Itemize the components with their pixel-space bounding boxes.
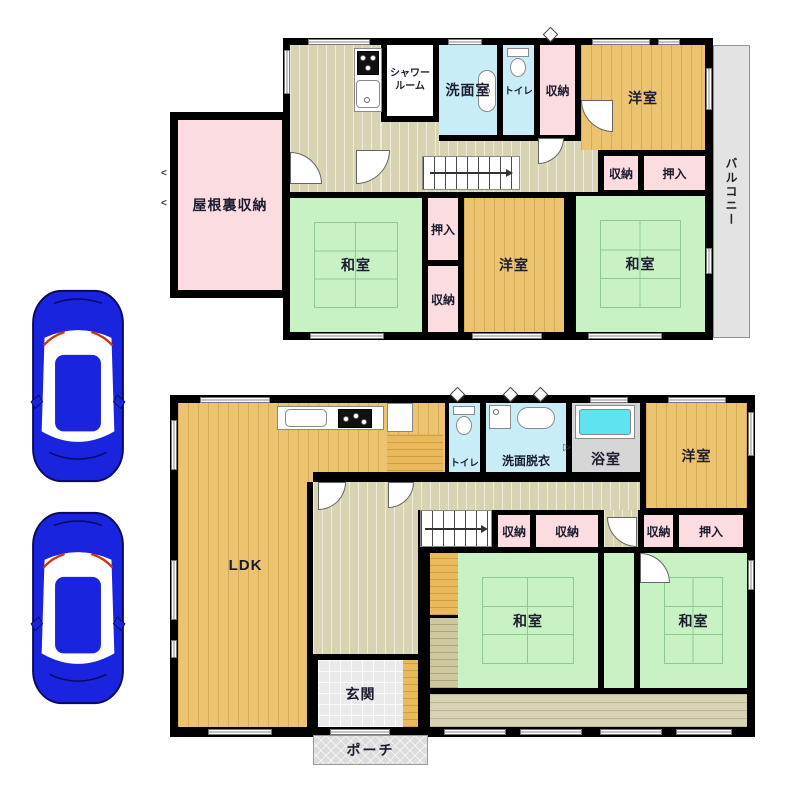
western-room-label: 洋室 (628, 88, 658, 108)
tokonoma-strip (430, 553, 458, 615)
room-washitsu-2f-left: 和室 (290, 198, 422, 332)
room-washitsu-2f-right: 和室 (576, 196, 705, 332)
room-closet-1f-b: 収納 (536, 515, 598, 547)
window (706, 68, 712, 110)
washing-machine-icon (489, 405, 511, 429)
attic-storage-label: 屋根裏収納 (193, 195, 268, 215)
shower-room-label: シャワールーム (388, 68, 432, 93)
floor1-hall-top (313, 482, 640, 510)
shoe-cabinet-strip (403, 660, 418, 727)
floor2-balcony: バルコニー (713, 45, 750, 338)
western-room-label: 洋室 (682, 446, 712, 466)
room-attic-storage: 屋根裏収納 (178, 120, 282, 290)
washitsu-label: 和室 (513, 611, 543, 631)
bath-door-arrow: ▷ (563, 442, 571, 453)
hatch-marker: < (161, 198, 167, 209)
washitsu-label: 和室 (341, 255, 371, 275)
toilet-icon (453, 406, 475, 415)
wall-segment (313, 472, 640, 482)
room-closet-1f-a: 収納 (498, 515, 530, 547)
room-entrance: 玄関 (318, 660, 403, 727)
window (308, 39, 370, 45)
room-closet-2f-mid: 収納 (428, 266, 458, 332)
closet-label: 収納 (555, 523, 579, 540)
bathtub-icon (579, 409, 631, 435)
board-floor-strip (430, 618, 458, 688)
washitsu-label: 和室 (679, 611, 709, 631)
oshiire-label: 押入 (431, 221, 455, 238)
passage-strip-green (604, 553, 634, 688)
window (284, 50, 290, 94)
wall-segment (307, 482, 313, 727)
window (592, 39, 650, 45)
room-oshiire-2f-right: 押入 (644, 156, 705, 190)
hatch-marker: < (161, 168, 167, 179)
washroom-dressing-label: 洗面脱衣 (502, 452, 550, 469)
stairs-arrow-head (481, 525, 488, 533)
window (590, 397, 628, 403)
bathroom-label: 浴室 (591, 449, 621, 469)
oshiire-label: 押入 (699, 523, 723, 540)
toilet-label: トイレ (450, 455, 479, 469)
room-oshiire-2f-mid: 押入 (428, 198, 458, 260)
ldk-label: LDK (229, 557, 263, 574)
toilet-label: トイレ (504, 83, 533, 97)
stove-icon (357, 51, 379, 75)
window (200, 397, 270, 403)
room-washitsu-1f-left: 和室 (458, 553, 598, 688)
room-western-1f: 洋室 (646, 403, 747, 508)
stairs-arrow-line (430, 172, 506, 174)
floor1-hall-vertical (313, 510, 418, 654)
stove-icon (338, 409, 372, 428)
window (171, 640, 177, 658)
window (171, 420, 177, 470)
kitchen-sink-icon (285, 409, 327, 427)
washitsu-label: 和室 (626, 254, 656, 274)
room-closet-2f-right: 収納 (604, 156, 638, 190)
window (171, 560, 177, 620)
room-shower: シャワールーム (387, 45, 433, 116)
porch: ポーチ (313, 735, 428, 765)
window (600, 729, 662, 735)
stairs-arrow-head (506, 169, 513, 177)
window (748, 412, 754, 456)
toilet-icon (510, 58, 526, 77)
closet-label: 収納 (609, 165, 633, 182)
room-western-2f-top: 洋室 (581, 45, 705, 150)
window (208, 729, 272, 735)
kitchen-sink-icon (356, 80, 380, 108)
stairs-arrow-line (425, 528, 481, 530)
window (444, 729, 506, 735)
window (520, 729, 582, 735)
wall-segment (640, 508, 747, 515)
room-washroom-2f: 洗面室 (439, 45, 497, 135)
floorplan-canvas: バルコニー 屋根裏収納 シャワールーム 洗面室 トイレ 収納 洋室 収納 押入 … (0, 0, 785, 800)
window (668, 397, 726, 403)
closet-label: 収納 (545, 82, 569, 99)
closet-label: 収納 (646, 523, 670, 540)
car-icon (30, 288, 126, 484)
room-oshiire-1f: 押入 (679, 515, 743, 547)
window (472, 333, 542, 339)
window (748, 560, 754, 590)
window (330, 729, 390, 735)
washroom-label: 洗面室 (446, 80, 491, 100)
toilet-icon (507, 48, 529, 57)
balcony-label: バルコニー (723, 157, 740, 227)
entrance-label: 玄関 (346, 684, 376, 704)
window (706, 248, 712, 274)
toilet-icon (456, 416, 472, 435)
car-icon (30, 510, 126, 706)
window (676, 729, 732, 735)
wash-basin-icon (517, 407, 555, 429)
room-western-2f-mid: 洋室 (464, 198, 564, 332)
western-room-label: 洋室 (499, 255, 529, 275)
engawa-corridor (430, 694, 747, 727)
room-closet-2f-top: 収納 (540, 45, 575, 135)
window (310, 333, 384, 339)
window (658, 39, 680, 45)
cupboard (387, 403, 413, 432)
window (448, 39, 482, 45)
room-closet-1f-c: 収納 (644, 515, 673, 547)
closet-label: 収納 (502, 523, 526, 540)
closet-label: 収納 (431, 291, 455, 308)
oshiire-label: 押入 (662, 165, 686, 182)
porch-label: ポーチ (347, 740, 395, 760)
window (588, 333, 662, 339)
